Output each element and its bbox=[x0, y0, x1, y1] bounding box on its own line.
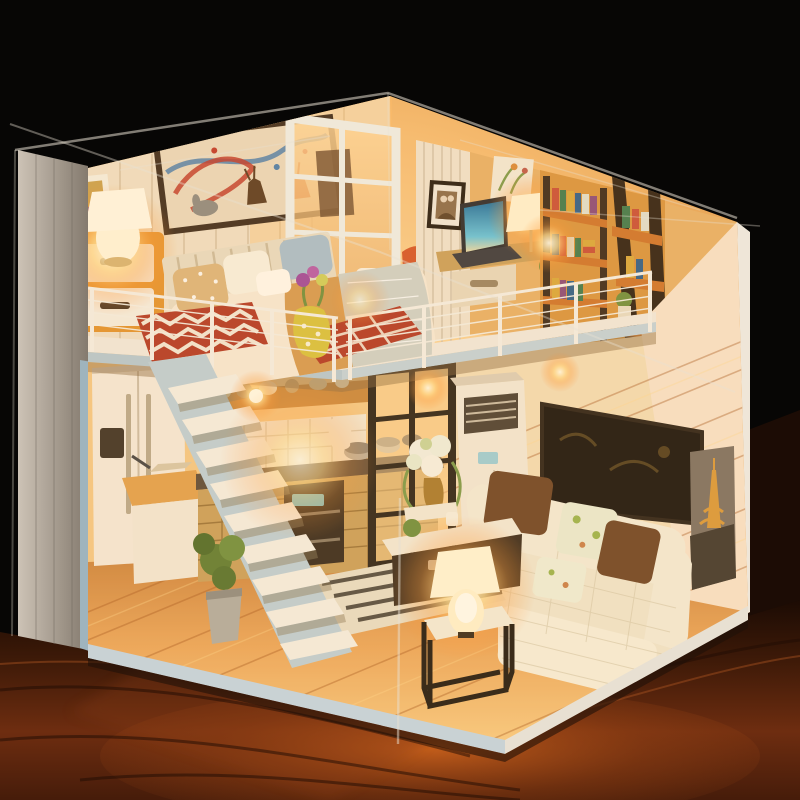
scene-canvas bbox=[0, 0, 800, 800]
photo-miniature-dollhouse: Warm-lit DIY miniature loft dollhouse di… bbox=[0, 0, 800, 800]
left-exterior-wall bbox=[18, 150, 88, 650]
table-far-right bbox=[748, 410, 800, 616]
